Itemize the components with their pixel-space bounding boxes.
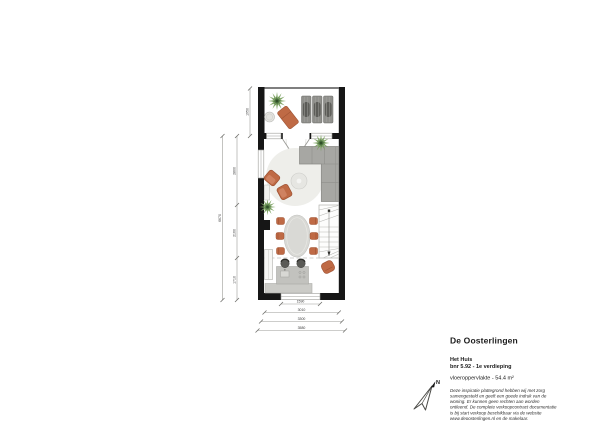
dim-label: 1710 xyxy=(233,276,237,284)
dim-label: 3010 xyxy=(298,308,306,312)
dim-label: 6670 xyxy=(218,214,222,222)
armchair-icon xyxy=(320,259,336,274)
bar-stool-icon xyxy=(297,259,305,267)
kitchen-island-icon xyxy=(277,267,309,285)
staircase-icon xyxy=(319,205,339,258)
dining-table-icon xyxy=(284,215,310,257)
sideboard-icon xyxy=(265,185,270,200)
dim-label: 2160 xyxy=(233,229,237,237)
lounge-chair-icon xyxy=(277,106,299,130)
dim-label: 1590 xyxy=(297,300,305,304)
dim-label: 3580 xyxy=(298,326,306,330)
north-arrow-icon: N xyxy=(414,380,440,410)
side-table-icon xyxy=(265,112,275,122)
sun-loungers-icon xyxy=(302,96,334,123)
kitchen-counter-icon xyxy=(265,284,312,294)
coffee-table-icon xyxy=(291,173,307,189)
title-block: De Oosterlingen Het Huis bnr 5.92 - 1e v… xyxy=(450,336,565,422)
project-title: De Oosterlingen xyxy=(450,336,565,346)
dim-label: 1950 xyxy=(246,108,250,116)
dim-label: 3300 xyxy=(298,317,306,321)
tall-cabinet-icon xyxy=(265,250,273,280)
floor-plan-sheet: 1590 3010 3300 3580 1950 2800 2160 1710 … xyxy=(0,0,600,424)
north-label: N xyxy=(436,380,440,386)
rear-window xyxy=(281,294,320,300)
plant-icon xyxy=(268,92,286,110)
unit-name: Het Huis xyxy=(450,356,565,363)
bar-stool-icon xyxy=(281,259,289,267)
disclaimer-text: Deze inspiratie plattegrond hebben wij m… xyxy=(450,388,558,422)
unit-subtitle: bnr 5.92 - 1e verdieping xyxy=(450,363,565,370)
facade-window-left xyxy=(267,133,282,139)
dim-label: 2800 xyxy=(233,167,237,175)
facade-window-right xyxy=(311,133,332,139)
side-window xyxy=(258,150,264,178)
floor-area: vloeroppervlakte - 54.4 m² xyxy=(450,375,565,381)
